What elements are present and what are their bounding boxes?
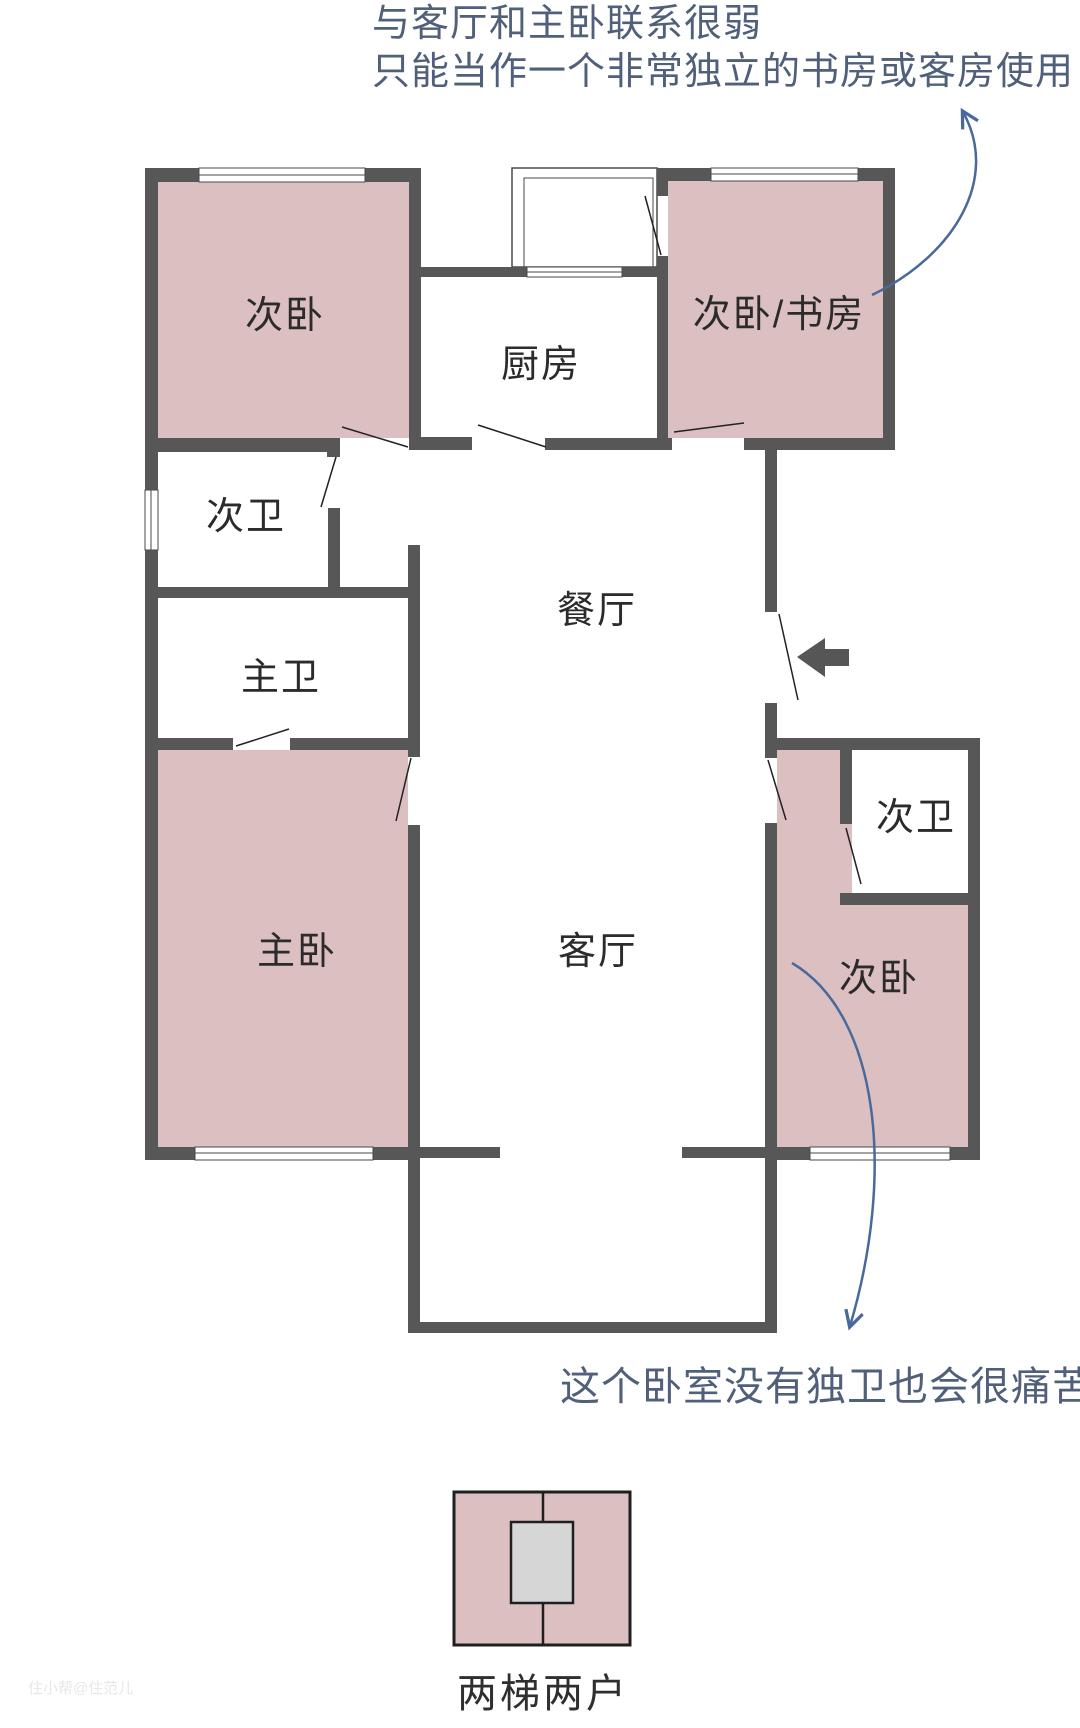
room-label-bath-secondary-left: 次卫 <box>206 496 286 538</box>
bottom-note: 这个卧室没有独卫也会很痛苦 <box>560 1365 1080 1409</box>
room-label-bedroom-right: 次卧 <box>839 958 919 1000</box>
room-label-living: 客厅 <box>558 931 638 973</box>
watermark: 住小帮@住范儿 <box>28 1680 133 1697</box>
room-label-bath-secondary-right: 次卫 <box>876 797 956 839</box>
top-note-line2: 只能当作一个非常独立的书房或客房使用 <box>372 51 1074 93</box>
legend-label: 两梯两户 <box>457 1672 629 1716</box>
room-label-master-bedroom: 主卧 <box>257 931 337 973</box>
room-label-bath-master: 主卫 <box>241 657 321 699</box>
room-label-bedroom-study: 次卧/书房 <box>693 294 866 336</box>
kitchen-bay-window <box>512 168 657 267</box>
entry-arrow-icon <box>797 638 849 677</box>
room-label-bedroom-top-left: 次卧 <box>245 295 325 337</box>
room-label-dining: 餐厅 <box>557 590 637 632</box>
room-label-kitchen: 厨房 <box>501 344 581 386</box>
floor-plan: 次卧 厨房 次卧/书房 次卫 主卫 餐厅 主卧 客厅 次卫 次卧 与客厅和主卧联… <box>0 0 1080 1728</box>
top-note-line1: 与客厅和主卧联系很弱 <box>372 3 762 45</box>
elevator-core-diagram: 两梯两户 <box>454 1492 630 1716</box>
elevator-core-box <box>511 1522 573 1603</box>
